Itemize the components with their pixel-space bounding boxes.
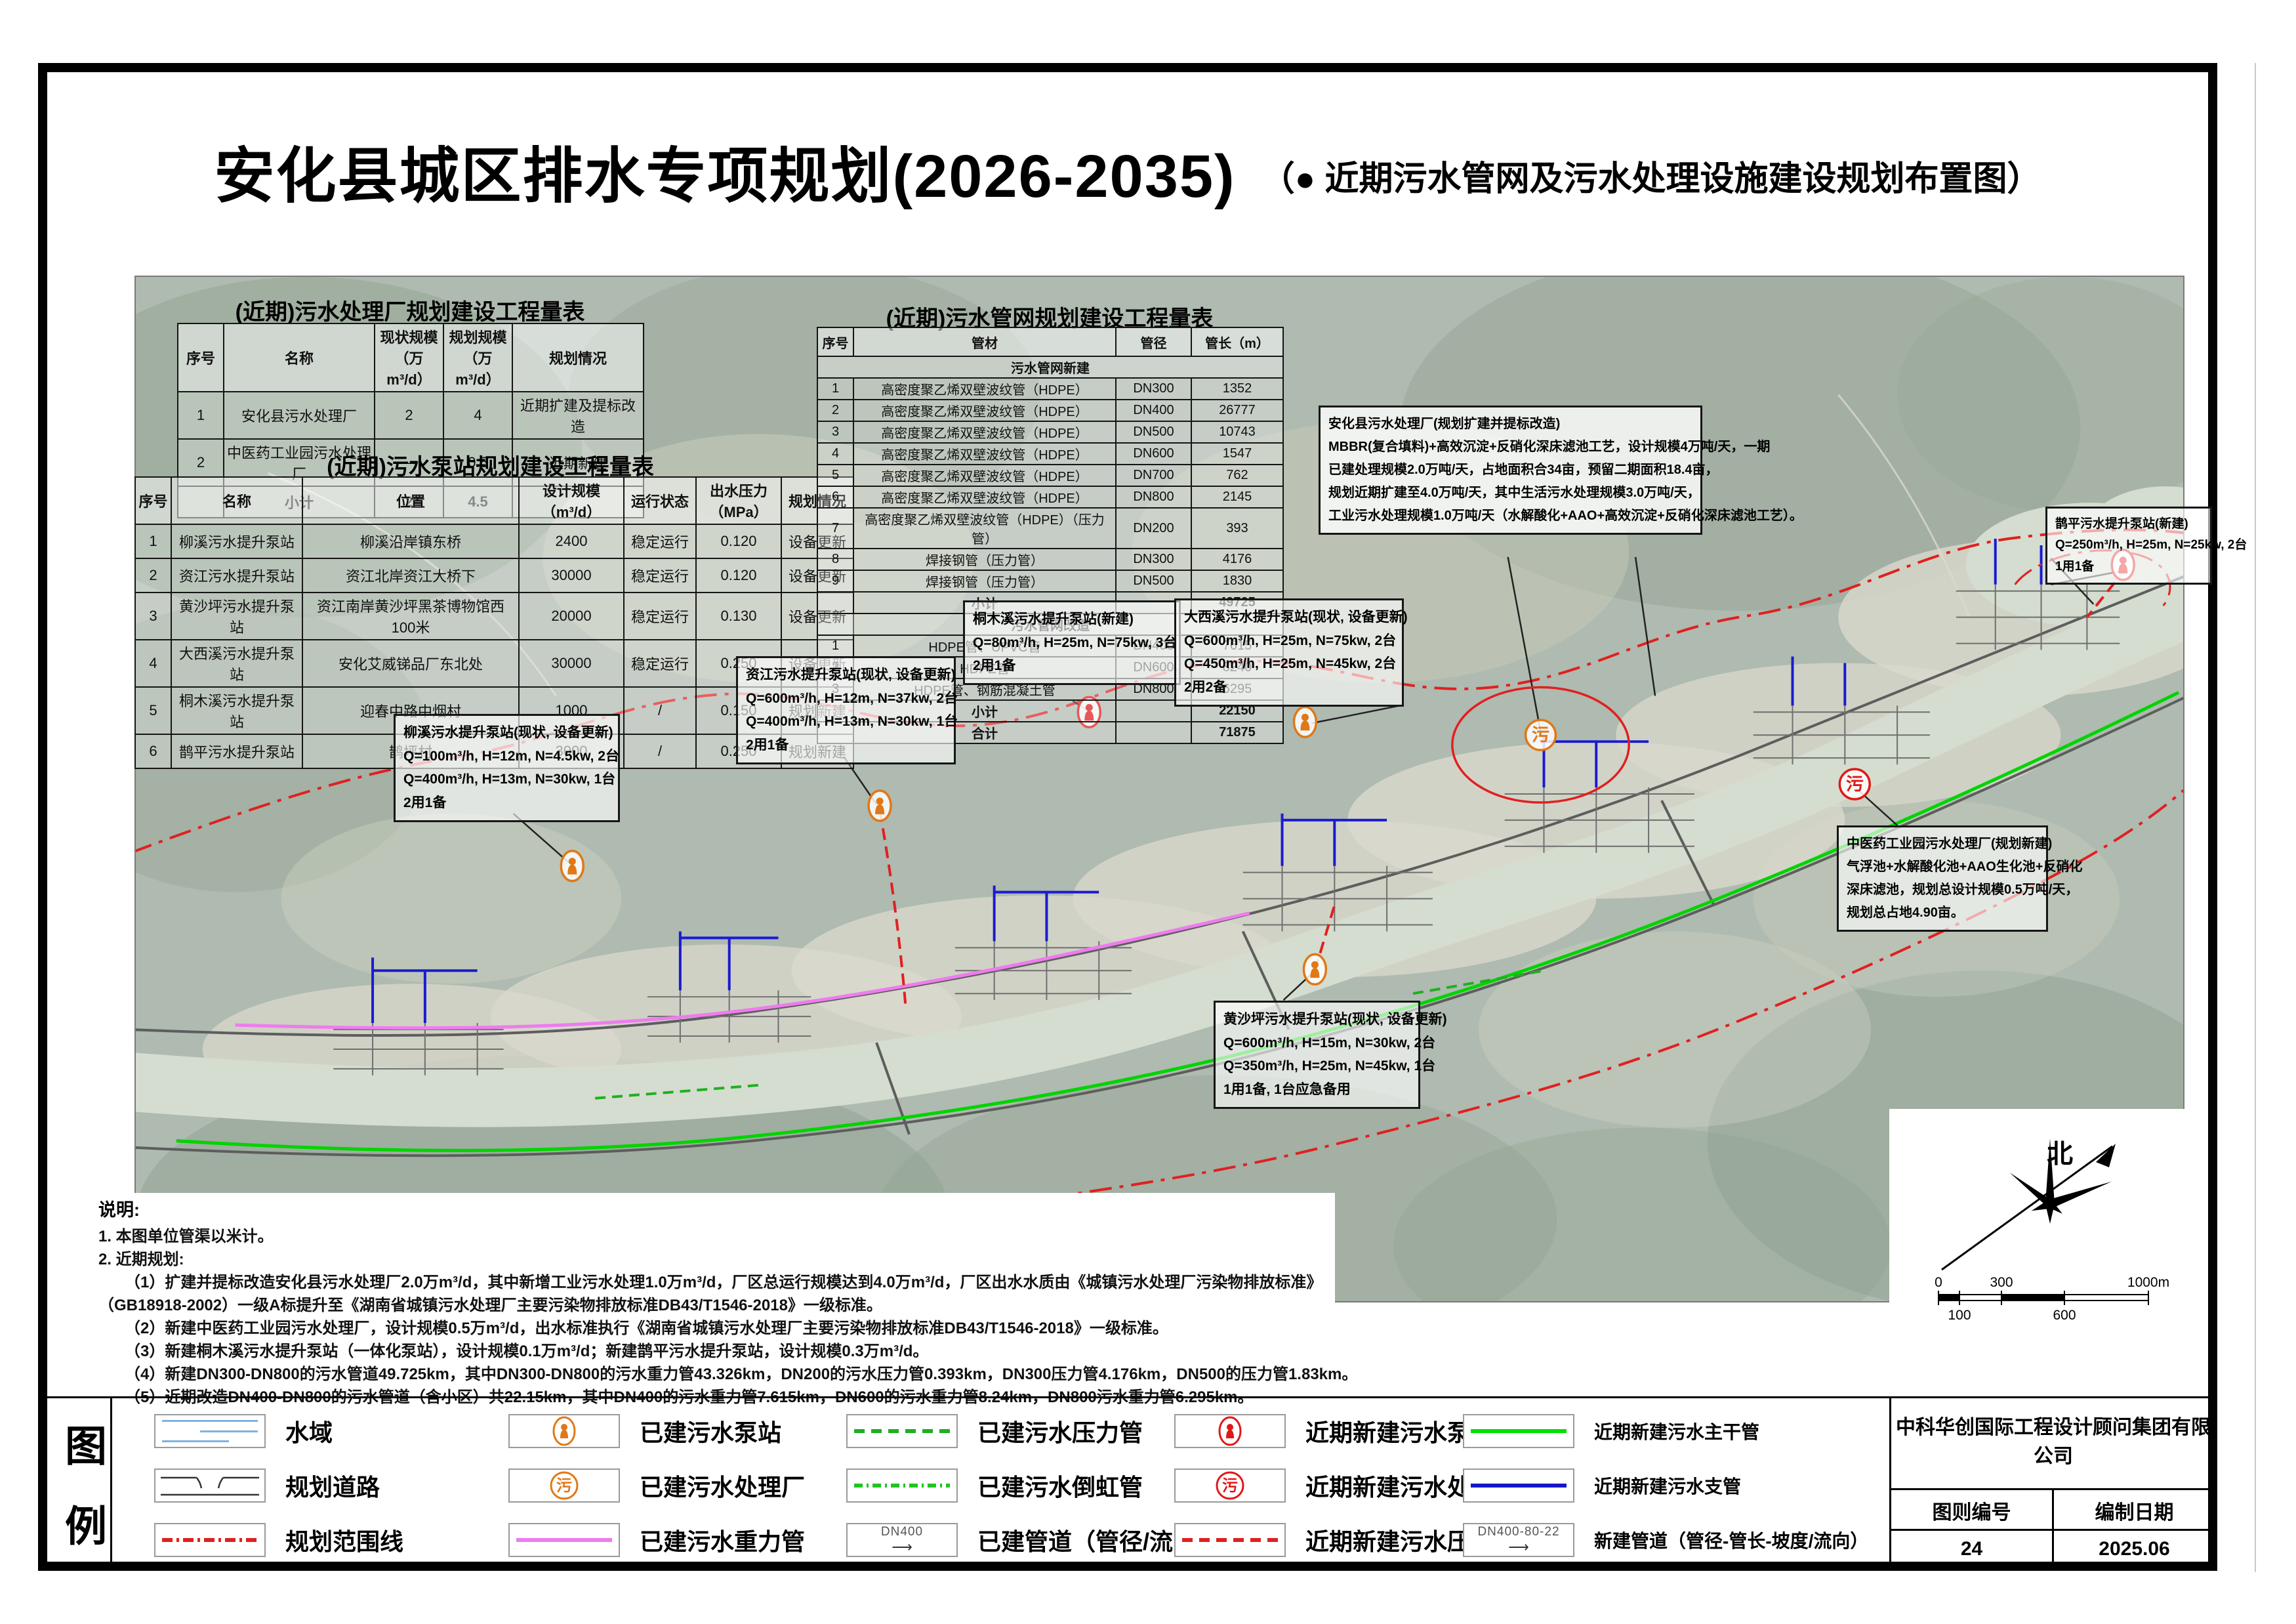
table-cell: 鹊平污水提升泵站: [171, 734, 302, 768]
table-cell: 1352: [1191, 378, 1283, 400]
pipe-label-text: DN400-80-22: [1477, 1526, 1559, 1538]
pump-station-icon: [561, 851, 583, 881]
legend-item-label: 已建污水处理厂: [640, 1468, 805, 1503]
table-cell: 71875: [1191, 722, 1283, 743]
annotation-line: 2用1备: [403, 791, 610, 815]
pipe-label-swatch: DN400⟶: [846, 1523, 958, 1557]
plant-char: 污: [1846, 774, 1864, 794]
table-row: 1柳溪污水提升泵站柳溪沿岸镇东桥2400稳定运行0.120设备更新: [135, 524, 853, 558]
treatment-plant-icon: 污: [1526, 720, 1556, 750]
table-cell: 9: [817, 570, 853, 592]
sheet-number-value: 24: [1891, 1538, 2052, 1560]
table-cell: 高密度聚乙烯双壁波纹管（HDPE）: [853, 421, 1116, 443]
pump-station-icon: [1303, 954, 1326, 984]
annotation-line: 2用1备: [746, 734, 946, 757]
table-cell: DN300: [1116, 549, 1191, 570]
table-cell: 稳定运行: [624, 640, 696, 687]
road-swatch: [154, 1468, 266, 1503]
table-row: 2资江污水提升泵站资江北岸资江大桥下30000稳定运行0.120设备更新: [135, 558, 853, 593]
table-row: 污水管网新建: [817, 356, 1283, 378]
table-cell: 1: [135, 524, 171, 558]
table-header-row: 序号管材管径管长（m）: [817, 327, 1283, 356]
table-cell: 2: [817, 400, 853, 421]
table-header-cell: 管长（m）: [1191, 327, 1283, 356]
annotation-tcm-wwtp: 中医药工业园污水处理厂(规划新建)气浮池+水解酸化池+AAO生化池+反硝化深床滤…: [1837, 825, 2048, 932]
annotation-line: Q=250m³/h, H=25m, N=25kw, 2台: [2055, 535, 2202, 556]
annotation-line: Q=600m³/h, H=15m, N=30kw, 2台: [1223, 1031, 1410, 1055]
table-row: 7高密度聚乙烯双壁波纹管（HDPE）（压力管）DN200393: [817, 508, 1283, 549]
table-cell: 4: [135, 640, 171, 687]
pump-station-icon: [1294, 707, 1316, 737]
table-cell: 30000: [519, 558, 624, 593]
table-cell: 20000: [519, 593, 624, 640]
legend-swatch-solid: [1463, 1414, 1574, 1448]
table-cell: 资江污水提升泵站: [171, 558, 302, 593]
table-row: 9焊接钢管（压力管）DN5001830: [817, 570, 1283, 592]
annotation-title: 中医药工业园污水处理厂(规划新建): [1847, 833, 2038, 856]
table-cell: 黄沙坪污水提升泵站: [171, 593, 302, 640]
legend-item-label: 规划道路: [285, 1468, 380, 1503]
annotation-title: 鹊平污水提升泵站(新建): [2055, 514, 2202, 535]
table-cell: 0.120: [696, 558, 781, 593]
table-header-cell: 序号: [135, 477, 171, 524]
table-row: 1高密度聚乙烯双壁波纹管（HDPE）DN3001352: [817, 378, 1283, 400]
table-cell: 高密度聚乙烯双壁波纹管（HDPE）: [853, 378, 1116, 400]
table-header-cell: 出水压力（MPa）: [696, 477, 781, 524]
table-cell: 柳溪污水提升泵站: [171, 524, 302, 558]
table-header-row: 序号名称现状规模（万m³/d）规划规模（万m³/d）规划情况: [178, 323, 644, 392]
note-line: （3）新建桐木溪污水提升泵站（一体化泵站），设计规模0.1万m³/d；新建鹊平污…: [98, 1340, 1328, 1363]
legend-swatch-dash: [1174, 1523, 1286, 1557]
annotation-line: Q=400m³/h, H=13m, N=30kw, 1台: [746, 710, 946, 734]
table-cell: 1: [817, 378, 853, 400]
table-header-cell: 位置: [302, 477, 519, 524]
table-cell: 稳定运行: [624, 593, 696, 640]
legend-swatch-solid: [508, 1523, 620, 1557]
table-header-cell: 名称: [224, 323, 375, 392]
treatment-plant-icon: 污: [508, 1468, 620, 1503]
table-cell: 393: [1191, 508, 1283, 549]
legend-swatch-dash: [846, 1414, 958, 1448]
drawing-sheet: 安化县城区排水专项规划(2026-2035) （● 近期污水管网及污水处理设施建…: [0, 0, 2296, 1624]
water-swatch: [154, 1414, 266, 1448]
compass-scale-panel: 北 0 300 1000m 100 600: [1889, 1109, 2184, 1352]
table-cell: 5: [817, 465, 853, 486]
table-cell: 30000: [519, 640, 624, 687]
legend-title: 图例: [52, 1424, 113, 1584]
annotation-line: Q=400m³/h, H=13m, N=30kw, 1台: [403, 768, 610, 791]
table-cell: 安化艾威锑品厂东北处: [302, 640, 519, 687]
svg-text:污: 污: [1222, 1477, 1238, 1495]
scale-bar: 0 300 1000m 100 600: [1925, 1276, 2175, 1335]
table-cell: 2145: [1191, 486, 1283, 508]
table-row: 3高密度聚乙烯双壁波纹管（HDPE）DN50010743: [817, 421, 1283, 443]
legend-item-label: 已建污水重力管: [640, 1523, 805, 1557]
legend-item-label: 新建管道（管径-管长-坡度/流向）: [1594, 1527, 1868, 1553]
table-cell: /: [624, 687, 696, 734]
annotation-line: MBBR(复合填料)+高效沉淀+反硝化深床滤池工艺，设计规模4万吨/天，一期: [1328, 436, 1692, 459]
legend-item-label: 近期新建污水主干管: [1594, 1418, 1759, 1444]
note-line: 1. 本图单位管渠以米计。: [98, 1225, 1328, 1248]
flow-arrow-icon: ⟶: [1508, 1540, 1529, 1554]
annotation-line: Q=450m³/h, H=25m, N=45kw, 2台: [1184, 652, 1394, 676]
annotation-line: 规划近期扩建至4.0万吨/天，其中生活污水处理规模3.0万吨/天，: [1328, 482, 1692, 505]
annotation-queping-pump: 鹊平污水提升泵站(新建)Q=250m³/h, H=25m, N=25kw, 2台…: [2045, 507, 2212, 585]
annotation-line: 1用1备: [2055, 556, 2202, 577]
table-cell: 高密度聚乙烯双壁波纹管（HDPE）: [853, 400, 1116, 421]
annotation-title: 柳溪污水提升泵站(现状, 设备更新): [403, 721, 610, 745]
table-cell: 0.130: [696, 593, 781, 640]
table-cell: 资江南岸黄沙坪黑茶博物馆西100米: [302, 593, 519, 640]
table-cell: 4: [817, 443, 853, 465]
table-cell: 7: [817, 508, 853, 549]
notes-block: 说明: 1. 本图单位管渠以米计。2. 近期规划:（1）扩建并提标改造安化县污水…: [92, 1193, 1335, 1415]
pump-station-icon: [869, 791, 891, 821]
annotation-title: 大西溪污水提升泵站(现状, 设备更新): [1184, 606, 1394, 629]
table-cell: 安化县污水处理厂: [224, 392, 375, 439]
table-row: 6高密度聚乙烯双壁波纹管（HDPE）DN8002145: [817, 486, 1283, 508]
table-cell: DN600: [1116, 443, 1191, 465]
annotation-line: 工业污水处理规模1.0万吨/天（水解酸化+AAO+高效沉淀+反硝化深床滤池工艺）…: [1328, 505, 1692, 528]
table-cell: 0.120: [696, 524, 781, 558]
company-name: 中科华创国际工程设计顾问集团有限公司: [1893, 1411, 2213, 1468]
boundary-line-swatch: [154, 1523, 266, 1557]
table-cell: 4: [443, 392, 512, 439]
table-header-cell: 序号: [817, 327, 853, 356]
table-header-cell: 规划规模（万m³/d）: [443, 323, 512, 392]
annotation-title: 资江污水提升泵站(现状, 设备更新): [746, 663, 946, 687]
table-cell: 6: [135, 734, 171, 768]
legend-swatch-dashdot: [846, 1468, 958, 1503]
plant-char: 污: [1532, 725, 1549, 745]
table-header-cell: 管材: [853, 327, 1116, 356]
table-cell: 1830: [1191, 570, 1283, 592]
legend-swatch-solid: [1463, 1468, 1574, 1503]
notes-lines: 1. 本图单位管渠以米计。2. 近期规划:（1）扩建并提标改造安化县污水处理厂2…: [98, 1225, 1328, 1409]
scale-label: 300: [1990, 1276, 2013, 1290]
annotation-line: Q=80m³/h, H=25m, N=75kw, 3台: [973, 631, 1171, 655]
pump-station-icon: [1174, 1414, 1286, 1448]
pipe-label-text: DN400: [881, 1526, 923, 1538]
date-label: 编制日期: [2054, 1496, 2215, 1525]
annotation-daxixi-pump: 大西溪污水提升泵站(现状, 设备更新)Q=600m³/h, H=25m, N=7…: [1174, 598, 1404, 707]
table-cell: DN300: [1116, 378, 1191, 400]
table-cell: 2: [135, 558, 171, 593]
table-cell: DN800: [1116, 486, 1191, 508]
table-cell: DN500: [1116, 421, 1191, 443]
table-cell: DN400: [1116, 400, 1191, 421]
scale-label: 0: [1935, 1276, 1942, 1290]
table-row: 8焊接钢管（压力管）DN3004176: [817, 549, 1283, 570]
annotation-zijiang-pump: 资江污水提升泵站(现状, 设备更新)Q=600m³/h, H=12m, N=37…: [736, 656, 956, 764]
scale-label: 100: [1948, 1308, 1971, 1323]
annotation-line: Q=600m³/h, H=12m, N=37kw, 2台: [746, 687, 946, 711]
table-row: 1安化县污水处理厂24近期扩建及提标改造: [178, 392, 644, 439]
page-subtitle: （● 近期污水管网及污水处理设施建设规划布置图）: [1261, 151, 2041, 200]
svg-text:污: 污: [556, 1477, 572, 1495]
table-cell: 大西溪污水提升泵站: [171, 640, 302, 687]
table-header-row: 序号名称位置设计规模（m³/d）运行状态出水压力（MPa）规划情况: [135, 477, 853, 524]
table-cell: [817, 592, 853, 614]
title-band: 安化县城区排水专项规划(2026-2035) （● 近期污水管网及污水处理设施建…: [47, 72, 2208, 269]
pump-station-icon: [508, 1414, 620, 1448]
table-cell: 高密度聚乙烯双壁波纹管（HDPE）: [853, 465, 1116, 486]
notes-heading: 说明:: [98, 1196, 1328, 1221]
table-cell: 近期扩建及提标改造: [512, 392, 644, 439]
table-cell: 1: [178, 392, 224, 439]
table-cell: /: [624, 734, 696, 768]
table-cell: 4176: [1191, 549, 1283, 570]
plant-table-title: (近期)污水处理厂规划建设工程量表: [177, 294, 643, 326]
legend-item-label: 已建污水泵站: [640, 1414, 781, 1448]
table-cell: DN700: [1116, 465, 1191, 486]
annotation-line: 深床滤池，规划总设计规模0.5万吨/天，: [1847, 879, 2038, 902]
legend-item-label: 水域: [285, 1414, 333, 1448]
table-cell: 2400: [519, 524, 624, 558]
annotation-line: 1用1备, 1台应急备用: [1223, 1078, 1410, 1102]
table-cell: 5: [135, 687, 171, 734]
table-header-cell: 现状规模（万m³/d）: [375, 323, 443, 392]
table-section-cell: 污水管网新建: [817, 356, 1283, 378]
note-line: （1）扩建并提标改造安化县污水处理厂2.0万m³/d，其中新增工业污水处理1.0…: [98, 1271, 1328, 1294]
table-cell: 1547: [1191, 443, 1283, 465]
table-cell: 柳溪沿岸镇东桥: [302, 524, 519, 558]
legend-item-label: 规划范围线: [285, 1523, 403, 1557]
table-cell: 焊接钢管（压力管）: [853, 570, 1116, 592]
table-cell: [1116, 722, 1191, 743]
annotation-title: 安化县污水处理厂(规划扩建并提标改造): [1328, 413, 1692, 436]
legend-item-label: 已建污水压力管: [977, 1414, 1143, 1448]
table-row: 5高密度聚乙烯双壁波纹管（HDPE）DN700762: [817, 465, 1283, 486]
legend-item-label: 近期新建污水支管: [1594, 1472, 1741, 1499]
north-arrow-icon: [1916, 1122, 2152, 1286]
table-header-cell: 名称: [171, 477, 302, 524]
annotation-line: 2用1备: [973, 654, 1171, 678]
annotation-title: 黄沙坪污水提升泵站(现状, 设备更新): [1223, 1008, 1410, 1031]
table-row: 2高密度聚乙烯双壁波纹管（HDPE）DN40026777: [817, 400, 1283, 421]
table-header-cell: 设计规模（m³/d）: [519, 477, 624, 524]
annotation-line: 气浮池+水解酸化池+AAO生化池+反硝化: [1847, 856, 2038, 879]
note-line: （4）新建DN300-DN800的污水管道49.725km，其中DN300-DN…: [98, 1363, 1328, 1386]
annotation-line: Q=350m³/h, H=25m, N=45kw, 1台: [1223, 1054, 1410, 1078]
table-cell: 稳定运行: [624, 558, 696, 593]
annotation-liuxi-pump: 柳溪污水提升泵站(现状, 设备更新)Q=100m³/h, H=12m, N=4.…: [394, 714, 620, 822]
table-cell: 高密度聚乙烯双壁波纹管（HDPE）（压力管）: [853, 508, 1116, 549]
table-header-cell: 运行状态: [624, 477, 696, 524]
table-cell: 焊接钢管（压力管）: [853, 549, 1116, 570]
pipe-label-swatch: DN400-80-22⟶: [1463, 1523, 1574, 1557]
table-cell: 桐木溪污水提升泵站: [171, 687, 302, 734]
table-cell: 6: [817, 486, 853, 508]
flow-arrow-icon: ⟶: [892, 1540, 912, 1554]
annotation-line: Q=100m³/h, H=12m, N=4.5kw, 2台: [403, 745, 610, 768]
annotation-line: 规划总占地4.90亩。: [1847, 902, 2038, 925]
annotation-huangshaping-pump: 黄沙坪污水提升泵站(现状, 设备更新)Q=600m³/h, H=15m, N=3…: [1214, 1001, 1420, 1109]
date-value: 2025.06: [2054, 1538, 2215, 1560]
table-cell: DN200: [1116, 508, 1191, 549]
annotation-anhua-wwtp: 安化县污水处理厂(规划扩建并提标改造)MBBR(复合填料)+高效沉淀+反硝化深床…: [1319, 406, 1702, 535]
table-cell: DN500: [1116, 570, 1191, 592]
treatment-plant-icon: 污: [1174, 1468, 1286, 1503]
annotation-line: Q=600m³/h, H=25m, N=75kw, 2台: [1184, 629, 1394, 653]
table-cell: 1: [817, 635, 853, 657]
page-title: 安化县城区排水专项规划(2026-2035): [214, 127, 1235, 215]
table-cell: 2: [375, 392, 443, 439]
scale-label: 1000m: [2127, 1276, 2169, 1290]
annotation-tongmuxi-pump: 桐木溪污水提升泵站(新建)Q=80m³/h, H=25m, N=75kw, 3台…: [963, 600, 1181, 685]
table-header-cell: 序号: [178, 323, 224, 392]
note-line: （GB18918-2002）一级A标提升至《湖南省城镇污水处理厂主要污染物排放标…: [98, 1294, 1328, 1317]
treatment-plant-icon: 污: [1839, 769, 1870, 799]
table-cell: 3: [135, 593, 171, 640]
table-cell: 10743: [1191, 421, 1283, 443]
table-cell: 3: [817, 421, 853, 443]
annotation-line: 已建处理规模2.0万吨/天，占地面积合34亩，预留二期面积18.4亩，: [1328, 459, 1692, 482]
annotation-title: 桐木溪污水提升泵站(新建): [973, 608, 1171, 631]
table-header-cell: 管径: [1116, 327, 1191, 356]
annotation-line: 2用2备: [1184, 676, 1394, 699]
table-row: 4高密度聚乙烯双壁波纹管（HDPE）DN6001547: [817, 443, 1283, 465]
sheet-trim-line: [2255, 63, 2256, 1572]
table-cell: 26777: [1191, 400, 1283, 421]
sheet-number-label: 图则编号: [1891, 1496, 2052, 1525]
table-cell: 资江北岸资江大桥下: [302, 558, 519, 593]
table-cell: 稳定运行: [624, 524, 696, 558]
table-row: 3黄沙坪污水提升泵站资江南岸黄沙坪黑茶博物馆西100米20000稳定运行0.13…: [135, 593, 853, 640]
note-line: （2）新建中医药工业园污水处理厂，设计规模0.5万m³/d，出水标准执行《湖南省…: [98, 1317, 1328, 1340]
table-cell: 8: [817, 549, 853, 570]
table-cell: 高密度聚乙烯双壁波纹管（HDPE）: [853, 443, 1116, 465]
table-header-cell: 规划情况: [512, 323, 644, 392]
table-cell: 762: [1191, 465, 1283, 486]
table-cell: 高密度聚乙烯双壁波纹管（HDPE）: [853, 486, 1116, 508]
legend-item-label: 已建污水倒虹管: [977, 1468, 1143, 1503]
scale-label: 600: [2053, 1308, 2076, 1323]
note-line: 2. 近期规划:: [98, 1248, 1328, 1271]
